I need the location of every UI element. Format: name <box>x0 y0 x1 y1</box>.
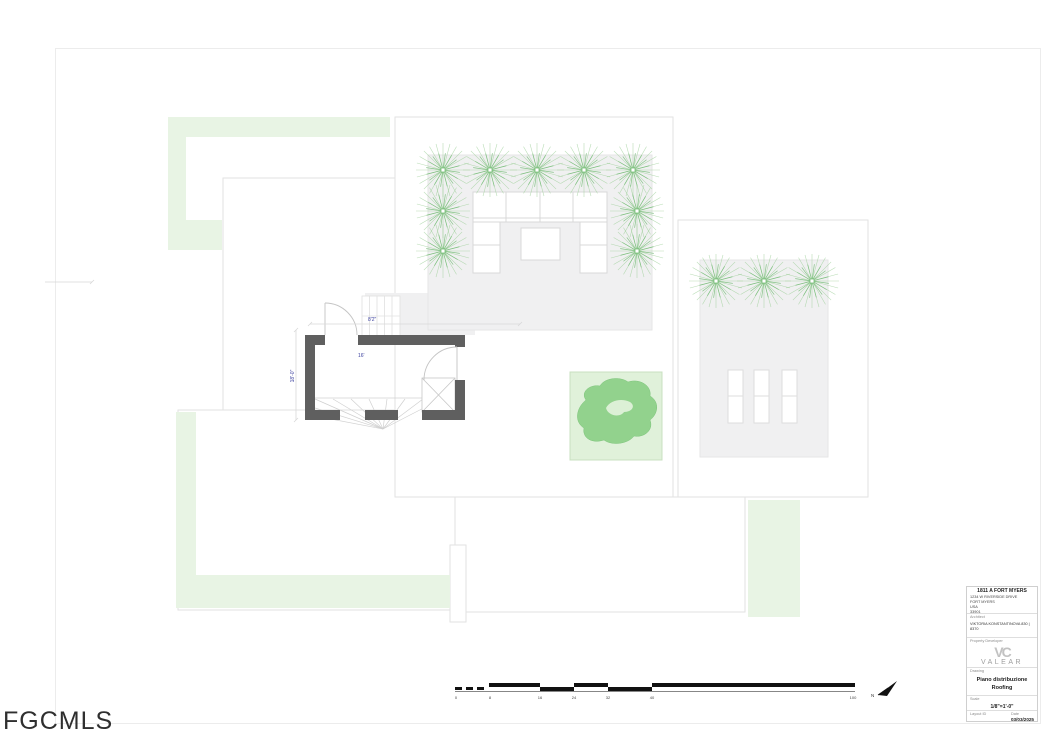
elevator-shaft <box>422 378 455 412</box>
layout-id-label: Layout ID <box>970 712 986 717</box>
room-bottom-center <box>455 497 745 612</box>
svg-text:24: 24 <box>572 695 577 700</box>
dimension-interior-label: 16' <box>358 353 365 359</box>
planter-band-bottom-right <box>748 500 800 617</box>
palm-tree-icon <box>610 224 664 278</box>
title-block-developer: Property Developer VC VALEAR CONCEPT <box>967 638 1037 668</box>
scale-bar <box>455 683 855 692</box>
title-block-scale: Scale 1/8"=1'-0" <box>967 696 1037 711</box>
svg-text:8: 8 <box>489 695 492 700</box>
developer-logo-name: VALEAR <box>970 659 1034 667</box>
drawing-title-line2: Roofing <box>970 684 1034 692</box>
svg-text:100: 100 <box>850 695 857 700</box>
svg-text:40: 40 <box>650 695 655 700</box>
scale-value: 1/8"=1'-0" <box>970 704 1034 710</box>
palm-tree-icon <box>463 143 517 197</box>
palm-tree-icon <box>606 143 660 197</box>
title-block-architect: Architect VIKTORIA KONSTANTINOVA 830 | 8… <box>967 614 1037 638</box>
title-block-drawing: Drawing Piano distribuzione Roofing <box>967 668 1037 696</box>
coffee-table <box>521 228 560 260</box>
drawing-sheet: 8'2" 18'-0" 16' 0 8 16 24 32 40 100 <box>0 0 1055 745</box>
title-block-footer: Layout ID Date 03/03/2025 <box>967 711 1037 721</box>
palm-tree-icon <box>785 254 839 308</box>
developer-logo-monogram: VC <box>970 645 1034 659</box>
project-name: 1811 A FORT MYERS <box>970 588 1034 595</box>
architect-name: VIKTORIA KONSTANTINOVA 830 | 8370 <box>970 622 1034 632</box>
svg-text:16: 16 <box>538 695 543 700</box>
stair-flight-grid <box>362 296 400 336</box>
drawing-label: Drawing <box>970 669 1034 674</box>
architect-label: Architect <box>970 615 1034 620</box>
title-block: 1811 A FORT MYERS 1234 W RIVERSIDE DRIVE… <box>966 586 1038 722</box>
date-value: 03/03/2025 <box>1011 717 1034 721</box>
scale-label: Scale <box>970 697 1034 702</box>
palm-tree-icon <box>510 143 564 197</box>
sun-loungers <box>728 370 797 423</box>
dimension-left-label: 18'-0" <box>290 369 296 382</box>
title-block-project: 1811 A FORT MYERS 1234 W RIVERSIDE DRIVE… <box>967 587 1037 614</box>
palm-tree-icon <box>416 224 470 278</box>
palm-tree-icon <box>689 254 743 308</box>
svg-text:32: 32 <box>606 695 611 700</box>
roof-garden <box>570 372 662 460</box>
fgcmls-watermark: FGCMLS <box>3 707 113 736</box>
north-label: N <box>871 693 874 698</box>
dimension-top-label: 8'2" <box>368 317 377 323</box>
svg-text:0: 0 <box>455 695 458 700</box>
room-small-column <box>450 545 466 622</box>
scale-bar-labels: 0 8 16 24 32 40 100 <box>455 695 857 700</box>
palm-tree-icon <box>557 143 611 197</box>
north-arrow-icon: N <box>871 681 897 698</box>
drawing-title: Piano distribuzione Roofing <box>970 676 1034 693</box>
palm-tree-icon <box>737 254 791 308</box>
roof-plan-drawing: 8'2" 18'-0" 16' 0 8 16 24 32 40 100 <box>0 0 1055 745</box>
drawing-title-line1: Piano distribuzione <box>970 676 1034 684</box>
